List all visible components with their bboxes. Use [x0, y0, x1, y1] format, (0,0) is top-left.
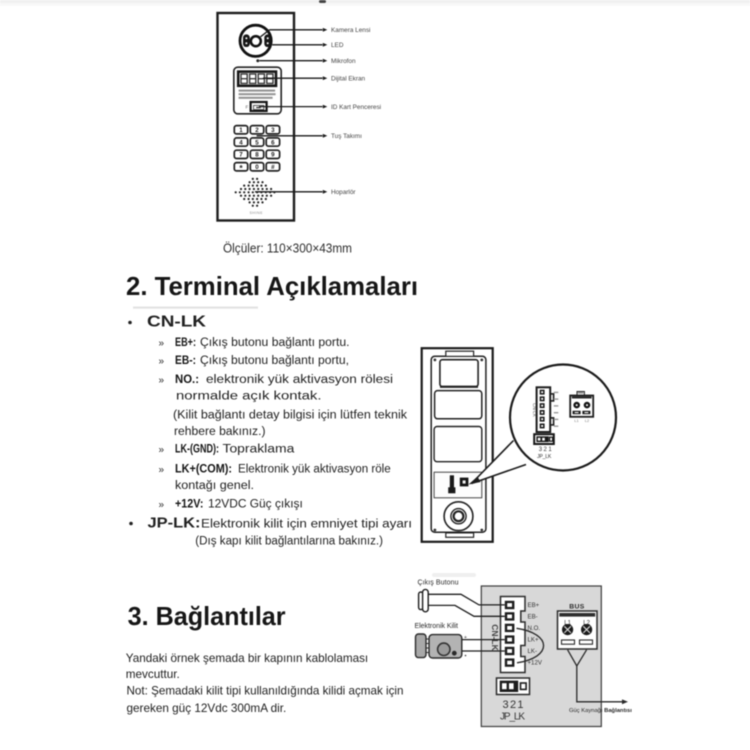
svg-text:Dijital Ekran: Dijital Ekran	[331, 76, 366, 83]
svg-text:NO.:elektronik yük aktivasyon: NO.:elektronik yük aktivasyon rölesi	[175, 374, 393, 386]
svg-text:Hoparlör: Hoparlör	[331, 189, 356, 196]
svg-text:L2: L2	[583, 620, 590, 626]
svg-text:L1: L1	[574, 419, 578, 423]
svg-text:»: »	[159, 464, 165, 475]
svg-text:(Dış kapı kilit bağlantılarına: (Dış kapı kilit bağlantılarına bakınız.)	[195, 535, 383, 547]
svg-text:»: »	[159, 445, 165, 456]
svg-text:3: 3	[271, 127, 275, 134]
svg-text:»: »	[159, 375, 165, 386]
svg-text:EB-:Çıkış butonu bağlantı port: EB-:Çıkış butonu bağlantı portu,	[175, 355, 349, 367]
svg-text:normalde açık kontak.: normalde açık kontak.	[176, 391, 322, 403]
svg-text:»: »	[159, 499, 165, 510]
svg-text:LK+: LK+	[528, 637, 539, 644]
svg-text:L1: L1	[564, 620, 571, 626]
svg-text:7: 7	[239, 152, 243, 159]
svg-text:BUS: BUS	[569, 604, 584, 611]
svg-text:Yandaki örnek şemada bir kapın: Yandaki örnek şemada bir kapının kablola…	[126, 651, 368, 665]
svg-text:LK-(GND):Topraklama: LK-(GND):Topraklama	[175, 444, 295, 456]
svg-text:Ölçüler: 110×300×43mm: Ölçüler: 110×300×43mm	[223, 241, 352, 256]
svg-text:2. Terminal Açıklamaları: 2. Terminal Açıklamaları	[126, 271, 418, 301]
svg-text:0: 0	[255, 164, 259, 171]
svg-text:kontağı genel.: kontağı genel.	[175, 480, 254, 492]
svg-text:JP_LK: JP_LK	[500, 712, 525, 723]
svg-text:EB-: EB-	[528, 614, 538, 621]
svg-text:(Kilit bağlantı detay bilgisi: (Kilit bağlantı detay bilgisi için lütfe…	[173, 409, 407, 421]
svg-text:Güç Kaynağı Bağlantısı: Güç Kaynağı Bağlantısı	[569, 708, 632, 714]
svg-text:gereken güç 12Vdc 300mA dir.: gereken güç 12Vdc 300mA dir.	[127, 701, 287, 715]
svg-text:3 2 1: 3 2 1	[539, 447, 553, 453]
svg-text:4: 4	[239, 139, 243, 146]
svg-text:F: F	[246, 105, 249, 110]
svg-text:CN-LK: CN-LK	[532, 403, 537, 418]
svg-text:Elektronik kilit için emniyet: Elektronik kilit için emniyet tipi ayarı	[201, 518, 412, 530]
svg-text:LED: LED	[331, 42, 344, 49]
svg-text:CN-LK: CN-LK	[147, 314, 207, 331]
svg-text:8: 8	[255, 152, 259, 159]
svg-text:SHINE: SHINE	[250, 211, 264, 215]
svg-text:Kamera Lensi: Kamera Lensi	[331, 27, 370, 34]
svg-text:5: 5	[255, 139, 259, 146]
svg-text:6: 6	[271, 139, 275, 146]
svg-text:1: 1	[239, 127, 243, 134]
svg-text:#: #	[271, 164, 275, 171]
svg-text:+12V: +12V	[528, 660, 543, 667]
svg-text:EB+:Çıkış butonu bağlantı port: EB+:Çıkış butonu bağlantı portu.	[175, 337, 350, 349]
svg-text:Çıkış Butonu: Çıkış Butonu	[418, 580, 459, 587]
svg-text:ID Kart Penceresi: ID Kart Penceresi	[331, 104, 381, 111]
svg-text:LK-: LK-	[528, 648, 537, 655]
svg-text:JP_LK: JP_LK	[537, 454, 552, 460]
svg-text:rehbere bakınız.): rehbere bakınız.)	[174, 426, 266, 438]
svg-text:EB+: EB+	[528, 602, 540, 609]
svg-text:Elektronik Kilit: Elektronik Kilit	[415, 623, 459, 630]
svg-text:2: 2	[255, 127, 259, 134]
svg-text:+12V:12VDC Güç çıkışı: +12V:12VDC Güç çıkışı	[175, 498, 303, 510]
svg-text:Not: Şemadaki kilit tipi kulla: Not: Şemadaki kilit tipi kullanıldığında…	[127, 684, 404, 698]
svg-text:3. Bağlantılar: 3. Bağlantılar	[128, 601, 286, 631]
svg-text:Mikrofon: Mikrofon	[331, 58, 356, 65]
svg-text:L2: L2	[585, 419, 589, 423]
svg-text:»: »	[159, 356, 165, 367]
svg-text:9: 9	[271, 152, 275, 159]
svg-text:mevcuttur.: mevcuttur.	[126, 667, 180, 681]
svg-text:3 2 1: 3 2 1	[503, 699, 524, 711]
svg-text:CN-LK: CN-LK	[490, 624, 500, 651]
svg-text:JP-LK:: JP-LK:	[148, 514, 201, 531]
svg-text:»: »	[159, 338, 165, 349]
svg-text:+: +	[464, 635, 467, 641]
svg-text:Tuş Takımı: Tuş Takımı	[331, 133, 362, 140]
svg-text:LK+(COM):Elektronik yük aktiva: LK+(COM):Elektronik yük aktivasyon röle	[175, 463, 391, 475]
